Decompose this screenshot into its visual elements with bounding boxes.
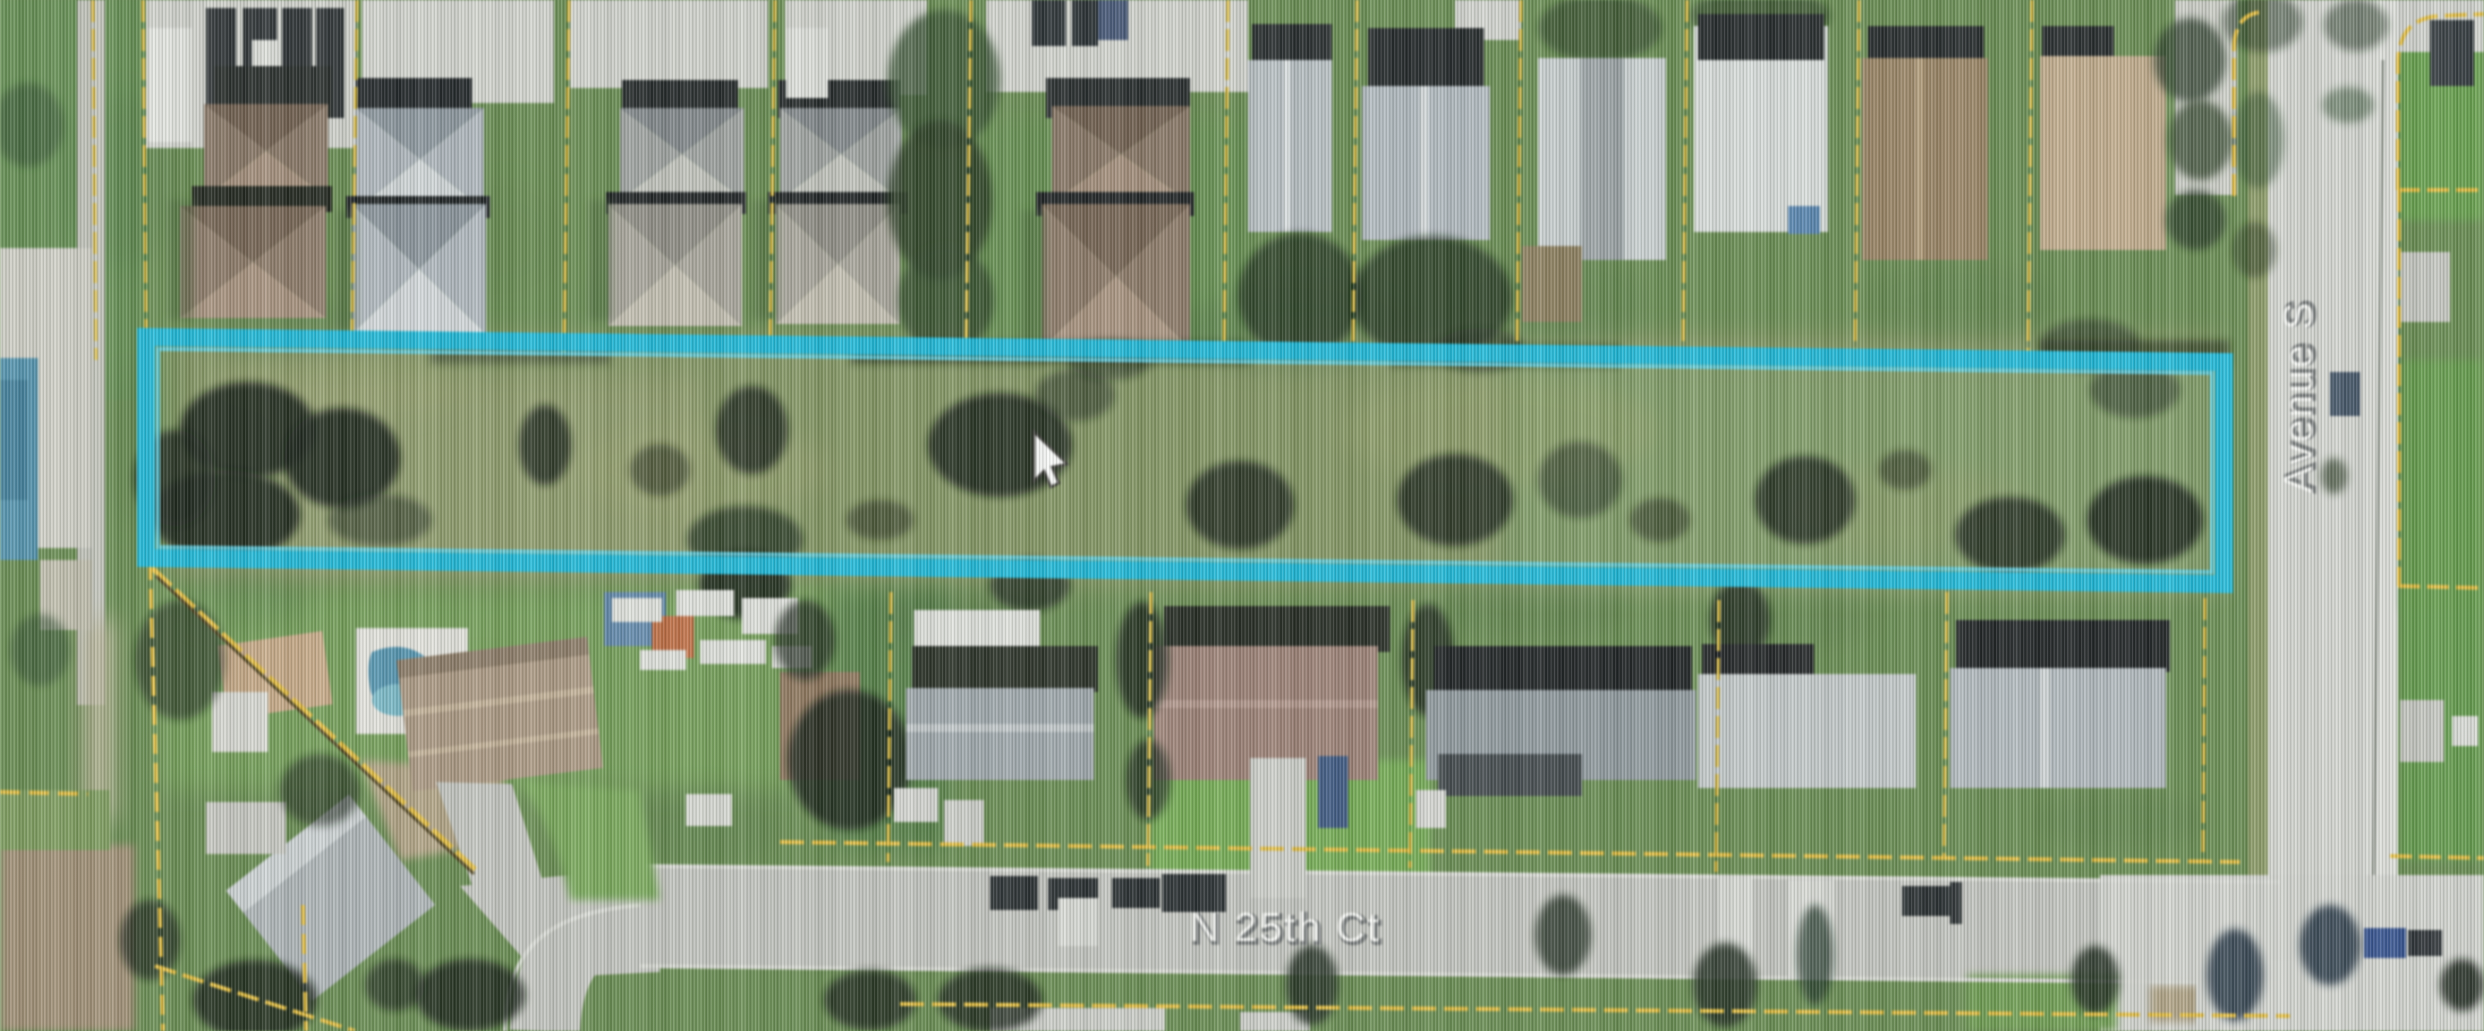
- svg-text:Avenue S: Avenue S: [2275, 300, 2321, 493]
- svg-text:N 25th Ct: N 25th Ct: [1189, 904, 1380, 950]
